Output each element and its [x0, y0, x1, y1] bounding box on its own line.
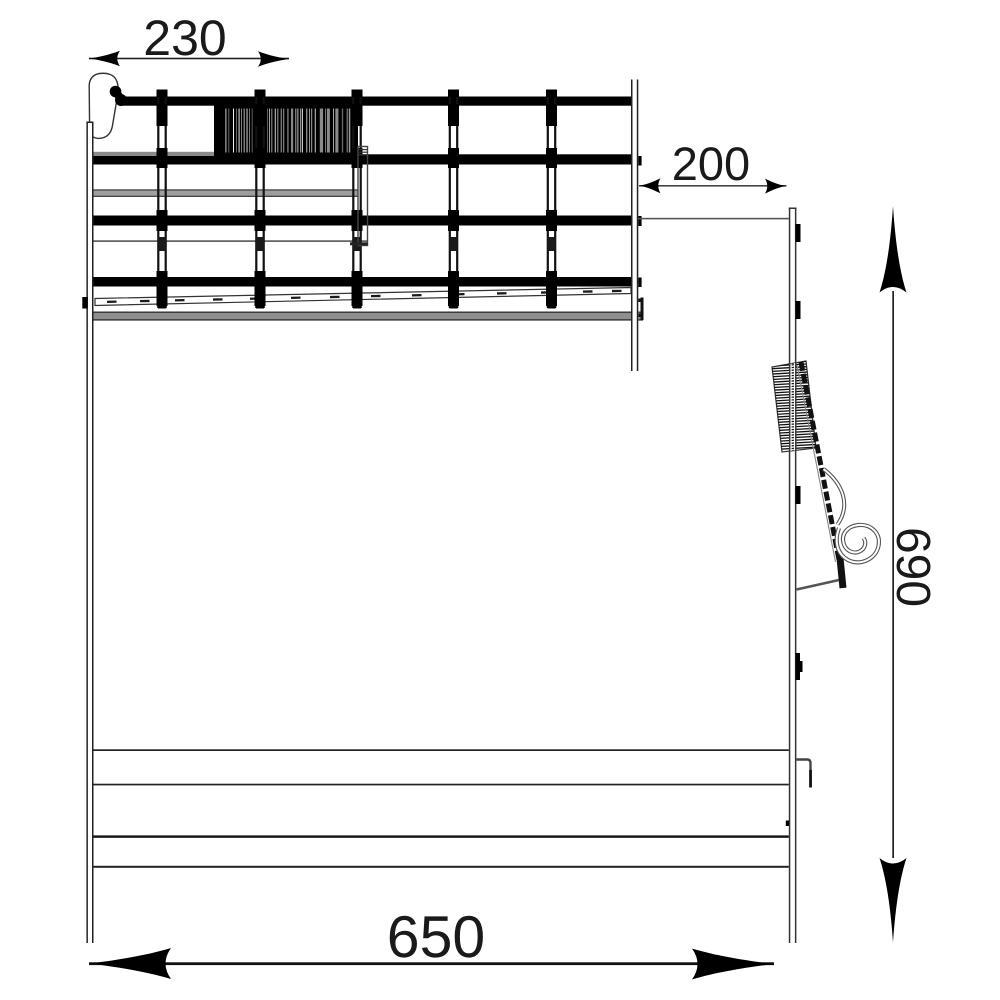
svg-text:650: 650 [387, 904, 485, 970]
svg-text:200: 200 [672, 137, 750, 190]
svg-text:230: 230 [143, 10, 226, 66]
svg-text:690: 690 [886, 527, 939, 607]
